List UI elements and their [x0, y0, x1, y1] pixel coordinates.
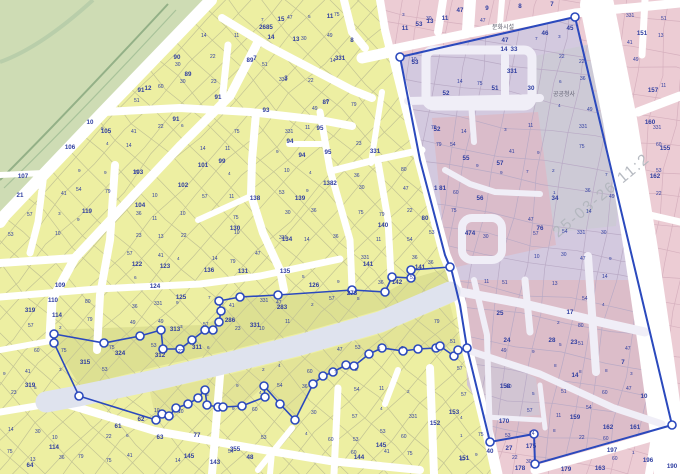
- svg-text:7: 7: [334, 369, 337, 374]
- svg-text:331: 331: [260, 298, 269, 304]
- svg-text:51: 51: [410, 275, 416, 281]
- svg-text:4: 4: [558, 103, 561, 108]
- svg-text:10: 10: [52, 435, 58, 441]
- svg-text:7: 7: [621, 359, 625, 366]
- svg-text:331: 331: [626, 13, 635, 19]
- svg-text:60: 60: [602, 390, 608, 396]
- svg-text:6: 6: [134, 275, 137, 280]
- svg-text:9: 9: [306, 188, 309, 193]
- svg-text:49: 49: [312, 106, 318, 112]
- svg-text:54: 54: [407, 237, 413, 243]
- svg-text:53: 53: [261, 435, 267, 441]
- svg-text:40: 40: [487, 448, 494, 455]
- svg-text:30: 30: [311, 410, 317, 416]
- svg-text:75: 75: [477, 81, 483, 87]
- svg-text:49: 49: [158, 319, 164, 325]
- svg-text:46: 46: [542, 30, 549, 37]
- svg-text:140: 140: [378, 222, 389, 229]
- svg-text:79: 79: [351, 102, 357, 108]
- svg-text:11: 11: [327, 13, 334, 20]
- svg-text:5: 5: [357, 296, 360, 301]
- svg-text:151: 151: [637, 30, 648, 37]
- svg-text:138: 138: [250, 195, 261, 202]
- svg-text:22: 22: [559, 54, 565, 60]
- svg-text:36: 36: [132, 304, 138, 310]
- svg-text:62: 62: [138, 416, 145, 423]
- svg-text:1: 1: [378, 346, 381, 351]
- svg-text:36: 36: [136, 211, 142, 217]
- svg-text:11: 11: [402, 25, 409, 32]
- svg-text:52: 52: [434, 126, 441, 133]
- svg-text:41: 41: [127, 453, 133, 459]
- svg-text:49: 49: [130, 320, 136, 326]
- svg-text:53: 53: [355, 345, 361, 351]
- svg-text:14: 14: [126, 143, 132, 149]
- svg-text:319: 319: [25, 307, 36, 314]
- svg-text:135: 135: [280, 268, 291, 275]
- svg-text:76: 76: [537, 225, 544, 232]
- svg-text:공공청사: 공공청사: [553, 90, 576, 98]
- svg-text:49: 49: [327, 33, 333, 39]
- svg-text:142: 142: [392, 279, 403, 286]
- svg-text:60: 60: [34, 348, 40, 354]
- svg-text:2: 2: [311, 302, 314, 307]
- svg-text:48: 48: [247, 454, 254, 461]
- svg-text:22: 22: [579, 435, 585, 441]
- svg-text:8: 8: [605, 368, 608, 373]
- svg-text:14: 14: [572, 372, 579, 379]
- svg-text:47: 47: [480, 18, 486, 24]
- svg-text:91: 91: [215, 94, 222, 101]
- svg-text:23: 23: [211, 79, 217, 85]
- svg-text:57: 57: [352, 414, 358, 420]
- svg-text:36: 36: [412, 255, 418, 261]
- svg-text:54: 54: [354, 387, 360, 393]
- svg-text:14: 14: [200, 146, 206, 152]
- svg-text:9: 9: [475, 452, 478, 457]
- svg-text:5: 5: [559, 342, 562, 347]
- svg-text:10: 10: [55, 231, 61, 237]
- svg-text:57: 57: [527, 408, 533, 414]
- svg-text:41: 41: [509, 149, 515, 155]
- svg-text:161: 161: [630, 424, 641, 431]
- svg-text:57: 57: [457, 366, 463, 372]
- svg-text:9: 9: [337, 279, 340, 284]
- svg-text:4: 4: [228, 171, 231, 176]
- svg-text:80: 80: [85, 299, 91, 305]
- svg-text:53: 53: [412, 59, 419, 66]
- svg-text:30: 30: [180, 79, 186, 85]
- svg-text:63: 63: [157, 434, 164, 441]
- svg-text:57: 57: [497, 160, 504, 167]
- svg-text:79: 79: [87, 317, 93, 323]
- svg-text:10: 10: [154, 408, 160, 414]
- svg-text:54: 54: [582, 296, 588, 302]
- svg-text:41: 41: [25, 369, 31, 375]
- svg-text:57: 57: [27, 212, 33, 218]
- svg-text:47: 47: [457, 7, 464, 14]
- svg-text:131: 131: [238, 268, 249, 275]
- svg-text:80: 80: [578, 323, 584, 329]
- svg-text:11: 11: [234, 33, 239, 39]
- svg-text:22: 22: [579, 59, 585, 65]
- svg-text:60: 60: [603, 436, 609, 442]
- svg-text:79: 79: [436, 142, 442, 148]
- svg-text:331: 331: [250, 322, 261, 329]
- svg-text:60: 60: [252, 407, 258, 413]
- svg-text:178: 178: [515, 465, 526, 472]
- svg-text:41: 41: [627, 40, 633, 46]
- svg-text:163: 163: [595, 465, 606, 472]
- svg-text:119: 119: [82, 208, 93, 215]
- svg-text:315: 315: [80, 359, 91, 366]
- svg-text:13: 13: [158, 234, 164, 240]
- svg-text:47: 47: [625, 346, 631, 352]
- svg-text:7: 7: [526, 169, 529, 174]
- svg-text:9: 9: [476, 163, 479, 168]
- svg-text:175: 175: [526, 443, 537, 450]
- svg-text:54: 54: [76, 187, 82, 193]
- svg-text:331: 331: [154, 301, 163, 307]
- svg-text:9: 9: [276, 149, 279, 154]
- svg-text:107: 107: [18, 173, 29, 180]
- svg-text:114: 114: [49, 444, 60, 451]
- svg-text:47: 47: [287, 15, 293, 21]
- svg-text:331: 331: [285, 129, 294, 135]
- svg-text:75: 75: [233, 215, 239, 221]
- svg-text:355: 355: [230, 446, 241, 453]
- svg-text:41: 41: [384, 449, 390, 455]
- svg-text:57: 57: [28, 323, 34, 329]
- svg-text:3: 3: [58, 211, 61, 216]
- svg-text:162: 162: [650, 173, 661, 180]
- svg-text:56: 56: [477, 195, 484, 202]
- svg-text:139: 139: [295, 195, 306, 202]
- svg-text:22: 22: [106, 434, 112, 440]
- svg-text:2: 2: [552, 168, 555, 173]
- svg-text:11: 11: [556, 413, 561, 419]
- svg-text:9: 9: [537, 150, 540, 155]
- svg-text:54: 54: [450, 142, 456, 148]
- svg-text:77: 77: [194, 432, 201, 439]
- svg-text:49: 49: [609, 194, 615, 200]
- svg-text:5: 5: [302, 274, 305, 279]
- svg-text:30: 30: [526, 459, 532, 465]
- svg-text:12: 12: [145, 85, 152, 92]
- svg-text:53: 53: [151, 343, 157, 349]
- svg-text:47: 47: [528, 217, 534, 223]
- svg-text:49: 49: [587, 107, 593, 113]
- svg-text:30: 30: [528, 85, 535, 92]
- svg-text:157: 157: [648, 87, 659, 94]
- svg-text:1: 1: [460, 433, 463, 438]
- svg-text:75: 75: [234, 129, 240, 135]
- svg-text:41: 41: [61, 191, 67, 197]
- svg-text:11: 11: [379, 386, 384, 392]
- svg-text:51: 51: [492, 85, 499, 92]
- svg-text:1 81: 1 81: [434, 185, 447, 192]
- svg-text:14: 14: [175, 458, 181, 464]
- svg-text:21: 21: [17, 192, 24, 199]
- svg-text:114: 114: [52, 312, 63, 319]
- svg-text:36: 36: [428, 260, 434, 266]
- svg-text:4: 4: [106, 141, 109, 146]
- svg-text:179: 179: [561, 466, 572, 473]
- svg-text:51: 51: [578, 341, 584, 347]
- svg-text:47: 47: [580, 256, 586, 262]
- svg-text:13: 13: [658, 33, 664, 39]
- svg-text:95: 95: [317, 125, 324, 132]
- svg-text:311: 311: [192, 344, 203, 351]
- svg-text:55: 55: [463, 155, 470, 162]
- svg-text:47: 47: [626, 386, 632, 392]
- svg-text:30: 30: [35, 429, 41, 435]
- svg-text:331: 331: [507, 68, 518, 75]
- svg-text:75: 75: [358, 210, 364, 216]
- svg-text:91: 91: [173, 116, 180, 123]
- svg-text:102: 102: [178, 182, 189, 189]
- svg-text:3: 3: [284, 75, 288, 82]
- svg-text:79: 79: [105, 189, 111, 195]
- svg-text:53: 53: [353, 437, 359, 443]
- svg-text:5: 5: [532, 391, 535, 396]
- svg-text:14: 14: [529, 431, 535, 437]
- svg-text:60: 60: [307, 369, 313, 375]
- svg-text:75: 75: [407, 451, 413, 457]
- svg-text:145: 145: [184, 453, 195, 460]
- svg-text:14: 14: [586, 209, 592, 215]
- svg-text:90: 90: [174, 54, 181, 61]
- svg-text:30: 30: [483, 234, 489, 240]
- svg-text:13: 13: [293, 36, 300, 43]
- svg-text:4: 4: [380, 406, 383, 411]
- svg-text:13: 13: [552, 281, 558, 287]
- svg-text:79: 79: [434, 319, 440, 325]
- svg-text:47: 47: [255, 251, 261, 257]
- svg-text:33: 33: [511, 46, 518, 53]
- svg-text:313: 313: [170, 326, 181, 333]
- svg-text:36: 36: [580, 76, 586, 82]
- svg-text:2: 2: [59, 325, 62, 330]
- svg-text:11: 11: [661, 83, 666, 89]
- svg-text:57: 57: [127, 251, 133, 257]
- svg-text:60: 60: [328, 437, 334, 443]
- svg-text:123: 123: [160, 263, 171, 270]
- svg-text:75: 75: [106, 458, 112, 464]
- svg-text:23: 23: [136, 233, 142, 239]
- svg-text:15: 15: [278, 16, 285, 23]
- svg-text:331: 331: [335, 55, 346, 62]
- svg-text:7: 7: [605, 172, 608, 177]
- svg-text:30: 30: [561, 252, 567, 258]
- svg-text:9: 9: [532, 349, 535, 354]
- svg-text:9: 9: [500, 170, 503, 175]
- svg-text:22: 22: [181, 233, 187, 239]
- svg-text:30: 30: [175, 62, 181, 68]
- svg-text:60: 60: [158, 84, 164, 90]
- svg-text:52: 52: [443, 90, 450, 97]
- svg-text:22: 22: [308, 78, 314, 84]
- svg-text:95: 95: [325, 149, 332, 156]
- svg-text:6: 6: [207, 345, 210, 350]
- svg-text:49: 49: [633, 57, 639, 63]
- svg-text:134: 134: [282, 236, 293, 243]
- svg-text:47: 47: [502, 37, 509, 44]
- svg-text:53: 53: [102, 367, 108, 373]
- svg-text:9: 9: [3, 371, 6, 376]
- svg-text:75: 75: [7, 449, 13, 455]
- svg-text:23: 23: [571, 339, 578, 346]
- svg-text:145: 145: [376, 442, 387, 449]
- svg-text:159: 159: [570, 414, 581, 421]
- svg-text:30: 30: [285, 210, 291, 216]
- svg-text:3: 3: [402, 12, 405, 17]
- svg-text:51: 51: [502, 280, 508, 286]
- svg-text:7: 7: [208, 295, 211, 300]
- svg-text:104: 104: [135, 202, 146, 209]
- svg-text:89: 89: [185, 71, 192, 78]
- svg-text:1: 1: [632, 450, 635, 455]
- svg-text:22: 22: [656, 191, 662, 197]
- svg-text:41: 41: [158, 253, 164, 259]
- svg-text:49: 49: [501, 348, 507, 354]
- svg-text:6: 6: [181, 123, 184, 128]
- svg-text:14: 14: [461, 129, 467, 135]
- svg-text:286: 286: [225, 317, 236, 324]
- svg-text:64: 64: [27, 462, 34, 469]
- svg-text:75: 75: [451, 208, 457, 214]
- svg-text:170: 170: [499, 418, 510, 425]
- svg-text:51: 51: [262, 62, 268, 68]
- svg-text:14: 14: [268, 34, 275, 41]
- svg-text:51: 51: [661, 16, 667, 22]
- svg-text:60: 60: [401, 434, 407, 440]
- svg-text:51: 51: [450, 339, 456, 345]
- svg-text:9: 9: [485, 5, 489, 12]
- svg-text:60: 60: [612, 456, 618, 462]
- svg-text:53: 53: [279, 190, 285, 196]
- svg-text:10: 10: [284, 168, 290, 174]
- svg-text:11: 11: [376, 237, 381, 243]
- svg-text:94: 94: [287, 138, 294, 145]
- svg-text:10: 10: [641, 393, 648, 400]
- svg-text:57: 57: [329, 296, 335, 302]
- svg-text:331: 331: [370, 148, 381, 155]
- svg-text:7: 7: [253, 55, 257, 62]
- svg-text:2: 2: [407, 389, 410, 394]
- svg-text:9: 9: [104, 170, 107, 175]
- svg-text:23: 23: [356, 141, 362, 147]
- svg-text:10: 10: [178, 409, 184, 415]
- svg-text:22: 22: [158, 124, 164, 130]
- svg-text:11: 11: [484, 279, 489, 285]
- svg-text:1382: 1382: [323, 180, 337, 187]
- svg-text:3: 3: [558, 34, 561, 39]
- svg-text:57: 57: [461, 392, 467, 398]
- svg-text:51: 51: [561, 389, 567, 395]
- svg-text:57: 57: [202, 194, 208, 200]
- svg-text:36: 36: [333, 234, 339, 240]
- svg-text:14: 14: [201, 33, 207, 39]
- svg-text:331: 331: [579, 124, 588, 130]
- svg-text:4: 4: [259, 390, 262, 395]
- svg-text:문화시설: 문화시설: [492, 23, 514, 31]
- svg-text:36: 36: [354, 173, 360, 179]
- svg-text:2: 2: [557, 320, 560, 325]
- svg-text:22: 22: [512, 455, 518, 461]
- svg-text:9: 9: [401, 345, 404, 350]
- svg-text:8: 8: [553, 428, 556, 433]
- svg-text:11: 11: [225, 146, 230, 152]
- svg-text:9: 9: [77, 217, 80, 222]
- svg-text:93: 93: [263, 107, 270, 114]
- svg-text:2685: 2685: [259, 24, 273, 31]
- svg-text:103: 103: [133, 169, 144, 176]
- svg-text:14: 14: [501, 46, 508, 53]
- svg-text:331: 331: [409, 414, 418, 420]
- svg-text:283: 283: [277, 304, 288, 311]
- svg-text:8: 8: [518, 3, 522, 10]
- svg-text:11: 11: [442, 15, 449, 22]
- svg-text:79: 79: [78, 454, 84, 460]
- svg-text:197: 197: [607, 447, 618, 454]
- svg-text:130: 130: [230, 225, 241, 232]
- svg-text:9: 9: [236, 383, 239, 388]
- svg-text:152: 152: [430, 420, 441, 427]
- svg-text:61: 61: [115, 423, 122, 430]
- svg-text:75: 75: [579, 144, 585, 150]
- svg-text:30: 30: [359, 185, 365, 191]
- svg-text:109: 109: [55, 282, 66, 289]
- svg-text:53: 53: [429, 230, 435, 236]
- svg-text:10: 10: [534, 254, 540, 260]
- svg-text:190: 190: [667, 463, 678, 470]
- svg-text:57: 57: [203, 322, 209, 328]
- svg-text:110: 110: [48, 297, 59, 304]
- svg-text:75: 75: [334, 12, 340, 18]
- svg-text:2: 2: [262, 367, 265, 372]
- svg-text:80: 80: [401, 167, 407, 173]
- svg-text:143: 143: [210, 459, 221, 466]
- svg-text:28: 28: [549, 337, 556, 344]
- svg-text:144: 144: [354, 454, 365, 461]
- svg-text:14: 14: [304, 237, 310, 243]
- svg-text:9: 9: [78, 168, 81, 173]
- svg-text:75: 75: [478, 432, 484, 438]
- svg-text:8: 8: [350, 37, 354, 44]
- svg-text:80: 80: [422, 215, 429, 222]
- svg-text:101: 101: [198, 162, 209, 169]
- svg-text:27: 27: [506, 445, 513, 452]
- svg-text:3: 3: [630, 371, 633, 376]
- svg-text:14: 14: [212, 256, 218, 262]
- svg-text:30: 30: [301, 36, 307, 42]
- svg-text:36: 36: [302, 384, 308, 390]
- svg-text:51: 51: [134, 98, 140, 104]
- svg-text:8: 8: [554, 363, 557, 368]
- svg-text:23: 23: [235, 326, 241, 332]
- svg-text:160: 160: [645, 119, 656, 126]
- svg-text:41: 41: [229, 303, 235, 309]
- svg-text:158: 158: [500, 383, 511, 390]
- svg-text:3: 3: [504, 127, 507, 132]
- svg-text:124: 124: [150, 283, 161, 290]
- svg-text:196: 196: [643, 457, 654, 464]
- svg-text:36: 36: [378, 280, 384, 286]
- svg-text:6: 6: [559, 79, 562, 84]
- svg-text:30: 30: [601, 230, 607, 236]
- svg-text:126: 126: [309, 282, 320, 289]
